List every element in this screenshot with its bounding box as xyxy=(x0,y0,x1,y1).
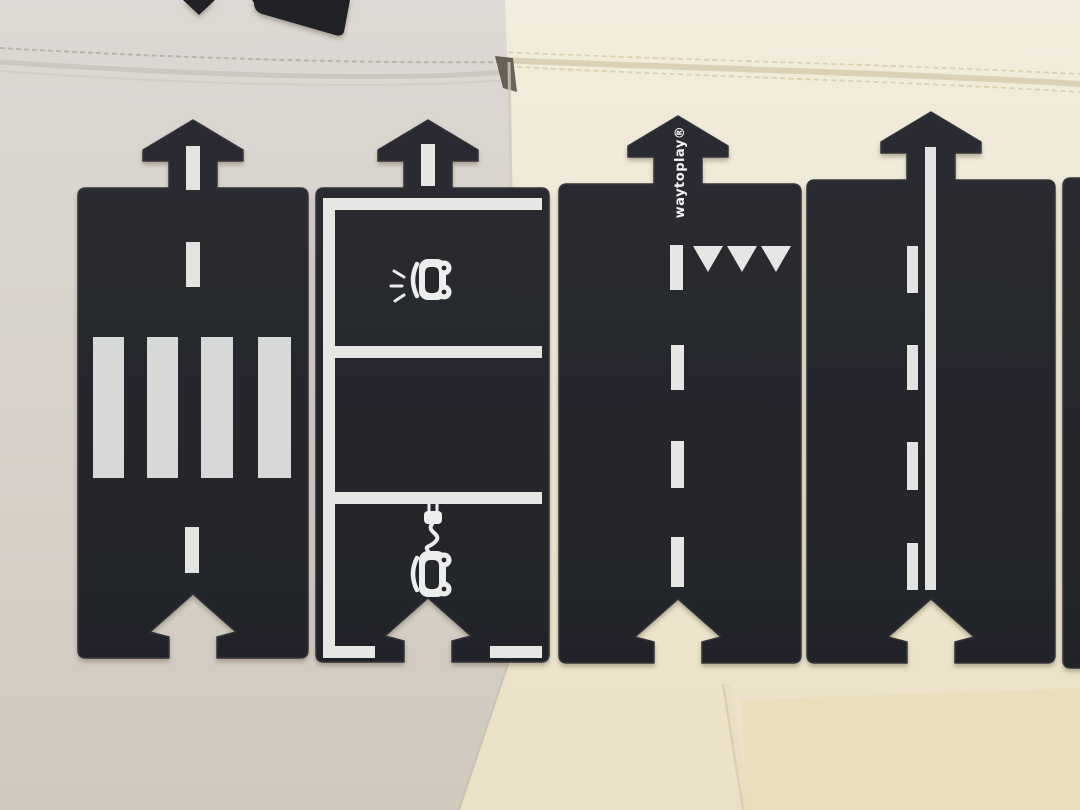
center-dash xyxy=(421,144,435,186)
waytoplay-logo-text: waytoplay® xyxy=(673,126,688,219)
center-dash xyxy=(907,345,918,390)
car-body-inner xyxy=(425,267,439,293)
center-dash xyxy=(907,543,918,590)
center-dash xyxy=(907,442,918,490)
wheel-hub xyxy=(442,266,447,271)
parking-line-top xyxy=(323,198,542,210)
parking-bay-divider xyxy=(335,346,542,358)
wheel-hub xyxy=(442,587,447,592)
road-piece-two-lane xyxy=(807,112,1055,663)
center-dash xyxy=(186,146,200,190)
road-piece-parking xyxy=(316,120,549,662)
center-dash xyxy=(185,527,199,573)
parking-bay-divider xyxy=(335,492,542,504)
zebra-stripe xyxy=(201,337,233,478)
car-body-inner xyxy=(425,560,439,589)
wheel-hub xyxy=(442,558,447,563)
center-dash xyxy=(671,537,684,587)
center-dash xyxy=(907,246,918,293)
partial-road-piece-right xyxy=(1063,178,1080,668)
road-piece-give-way: waytoplay® xyxy=(559,116,801,663)
center-dash xyxy=(186,242,200,287)
charging-plug xyxy=(424,511,442,524)
wheel-hub xyxy=(442,290,447,295)
parking-line-bottom-right xyxy=(490,646,542,658)
zebra-stripe xyxy=(93,337,124,478)
zebra-stripe xyxy=(258,337,291,478)
center-dash xyxy=(671,441,684,488)
sofa-seat-yellow-area xyxy=(742,688,1080,810)
zebra-stripe xyxy=(147,337,178,478)
parking-line-left xyxy=(323,198,335,658)
photo-of-toy-road-pieces-on-sofa: waytoplay® xyxy=(0,0,1080,810)
lane-solid-line xyxy=(925,147,936,590)
parking-line-bottom-left xyxy=(323,646,375,658)
road-piece-pedestrian-crossing xyxy=(78,120,308,658)
center-dash xyxy=(671,345,684,390)
sofa-section-boundary xyxy=(509,62,511,190)
give-way-bar xyxy=(670,245,683,290)
